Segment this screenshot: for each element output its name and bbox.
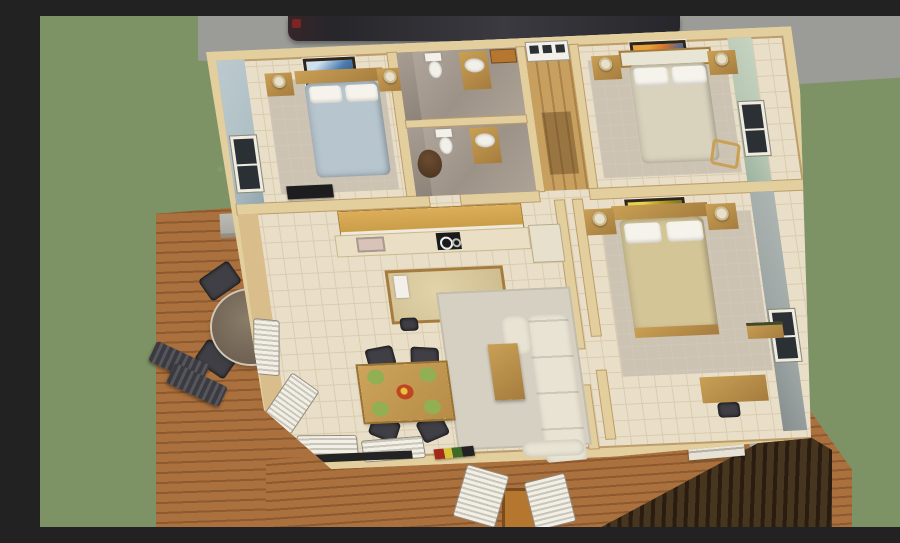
desk-chair [717, 402, 741, 418]
bedroom-2 [577, 37, 771, 189]
front-door [526, 41, 570, 61]
place-setting [423, 399, 442, 415]
pillow [344, 84, 378, 102]
floorplan-render: Aerial 3D dollhouse rendering of a singl… [40, 16, 900, 527]
burner [451, 238, 461, 247]
door-pane [542, 45, 552, 53]
centerpiece [395, 384, 414, 400]
place-setting [418, 367, 437, 383]
pillow [665, 220, 704, 242]
cabinet [491, 49, 517, 62]
pillow [633, 67, 670, 86]
sofa-end [521, 439, 585, 458]
living-area [238, 201, 590, 463]
house-floor [206, 26, 850, 472]
bathrooms [396, 47, 536, 196]
desk [699, 375, 769, 404]
stool [399, 317, 419, 331]
corner-window-blinds [254, 319, 278, 375]
place-setting [366, 369, 385, 385]
bench [746, 321, 784, 339]
kitchen-sink [356, 236, 386, 252]
dresser [286, 184, 334, 199]
pillow [308, 85, 342, 103]
refrigerator [529, 225, 564, 262]
door-pane [529, 45, 539, 53]
cooktop [436, 232, 462, 250]
car-taillight [292, 19, 301, 28]
magazines [433, 446, 475, 460]
door-pane [555, 44, 565, 52]
bedroom-1 [216, 53, 408, 205]
place-setting [371, 401, 390, 417]
dining-table [358, 362, 454, 422]
pillow [623, 222, 662, 244]
pillow [671, 65, 708, 84]
bedroom-3 [582, 191, 807, 438]
